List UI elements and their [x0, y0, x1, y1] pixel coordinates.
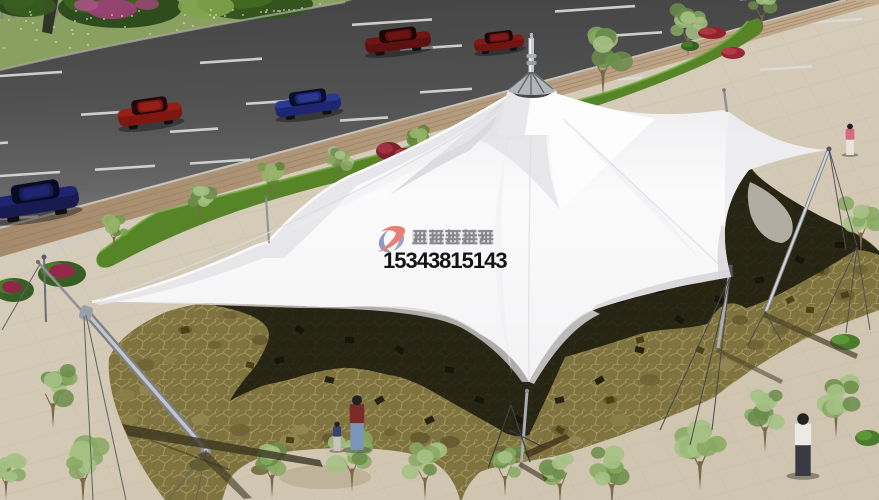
svg-text:15343815143: 15343815143: [383, 248, 507, 273]
